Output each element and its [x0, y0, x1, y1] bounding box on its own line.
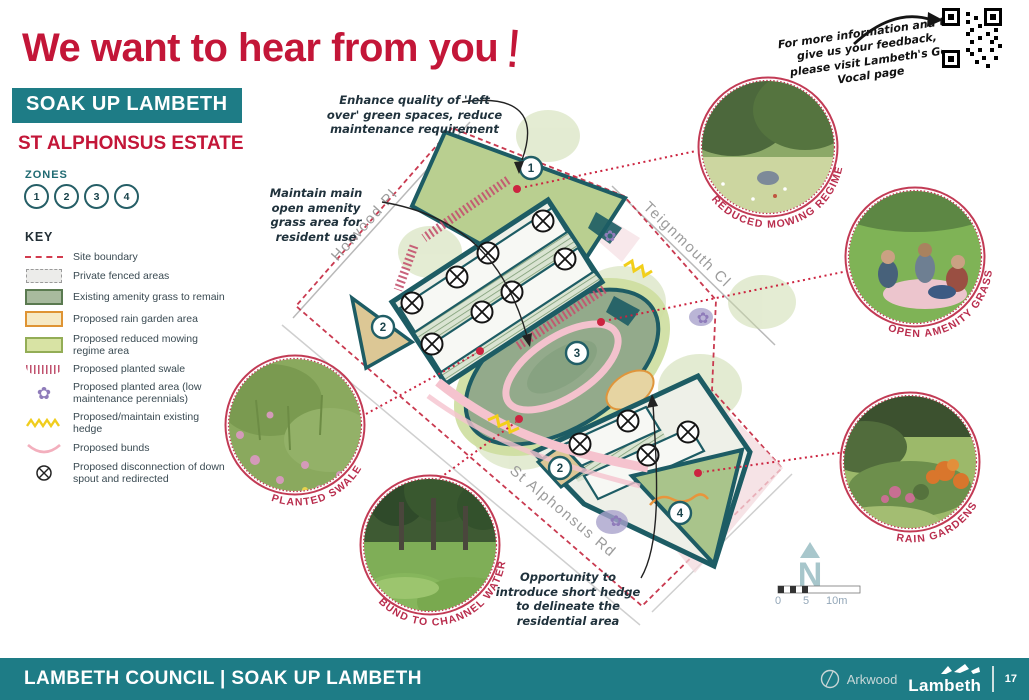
key-row: Existing amenity grass to remain [24, 289, 226, 305]
arkwood-logo: Arkwood [819, 668, 898, 690]
zone-marker: 2 [549, 457, 571, 479]
zone-chip: 2 [54, 184, 79, 209]
flower-icon: ✿ [610, 513, 623, 530]
scale-bar: 0 5 10m [775, 586, 860, 607]
zones-legend: 1 2 3 4 [24, 184, 139, 209]
rain-garden-swatch [25, 311, 63, 327]
lambeth-bird-icon [939, 663, 981, 676]
svg-text:10m: 10m [826, 595, 847, 607]
key-row: Proposed bunds [24, 442, 226, 455]
planted-area-flower-icon: ✿ [37, 385, 51, 402]
key-item-label: Proposed reduced mowing regime area [73, 333, 226, 357]
zone-chip: 4 [114, 184, 139, 209]
footer-logos: Arkwood Lambeth 17 [819, 663, 1017, 696]
key-item-label: Site boundary [73, 251, 138, 263]
downspout-icon [35, 464, 53, 482]
page-title: We want to hear from you! [22, 12, 521, 74]
svg-text:0: 0 [775, 595, 781, 607]
key-row: Proposed reduced mowing regime area [24, 333, 226, 357]
svg-text:3: 3 [574, 348, 580, 360]
key-row: Proposed rain garden area [24, 311, 226, 327]
key-item-label: Proposed planted area (low maintenance p… [73, 381, 226, 405]
zone-chip: 3 [84, 184, 109, 209]
svg-text:5: 5 [803, 595, 809, 607]
page-number: 17 [1005, 673, 1017, 685]
key-item-label: Proposed bunds [73, 442, 149, 454]
photo-rain-gardens: RAIN GARDENS [825, 377, 995, 547]
svg-text:2: 2 [557, 463, 563, 475]
key-item-label: Proposed/maintain existing hedge [73, 411, 226, 435]
estate-title: ST ALPHONSUS ESTATE [18, 133, 244, 155]
bund-arc-icon [26, 442, 62, 455]
reduced-mowing-swatch [25, 337, 63, 353]
soak-up-lambeth-badge: SOAK UP LAMBETH [12, 88, 242, 123]
zone-marker: 3 [566, 342, 588, 364]
footer-title: LAMBETH COUNCIL | SOAK UP LAMBETH [24, 668, 422, 690]
photo-open-amenity-grass: OPEN AMENITY GRASS [830, 172, 1000, 342]
site-boundary-swatch [25, 256, 63, 258]
svg-text:1: 1 [528, 163, 535, 175]
arkwood-label: Arkwood [847, 672, 898, 687]
zone-chip: 1 [24, 184, 49, 209]
key-row: Private fenced areas [24, 269, 226, 283]
annotation-enhance-quality: Enhance quality of 'left over' green spa… [322, 93, 507, 137]
lambeth-label: Lambeth [908, 676, 981, 696]
flower-icon: ✿ [697, 310, 710, 327]
annotation-maintain-grass: Maintain main open amenity grass area fo… [252, 186, 380, 245]
map-key: Site boundary Private fenced areas Exist… [24, 251, 226, 485]
lambeth-logo: Lambeth [908, 663, 981, 696]
key-row: ✿ Proposed planted area (low maintenance… [24, 381, 226, 405]
footer-bar: LAMBETH COUNCIL | SOAK UP LAMBETH Arkwoo… [0, 658, 1029, 700]
key-item-label: Proposed planted swale [73, 363, 185, 375]
key-item-label: Proposed disconnection of down spout and… [73, 461, 226, 485]
key-row: Site boundary [24, 251, 226, 263]
photo-image [830, 172, 1000, 342]
key-item-label: Proposed rain garden area [73, 313, 198, 325]
key-item-label: Existing amenity grass to remain [73, 291, 225, 303]
zone-marker: 2 [372, 316, 394, 338]
footer-divider [992, 666, 994, 692]
planted-swale-swatch [26, 365, 62, 374]
svg-text:4: 4 [677, 508, 684, 520]
qr-code [942, 8, 1002, 68]
zone-marker: 4 [669, 502, 691, 524]
svg-text:2: 2 [380, 322, 386, 334]
photo-image [825, 377, 995, 547]
zones-label: ZONES [25, 169, 68, 181]
key-row: Proposed/maintain existing hedge [24, 411, 226, 435]
exclamation-mark: ! [504, 17, 524, 80]
annotation-short-hedge: Opportunity to introduce short hedge to … [488, 570, 648, 629]
private-fenced-swatch [26, 269, 62, 283]
flower-icon: ✿ [604, 228, 617, 245]
key-item-label: Private fenced areas [73, 270, 169, 282]
key-row: Proposed planted swale [24, 363, 226, 375]
hedge-zigzag-icon [26, 418, 62, 429]
arrow-to-qr-icon [850, 4, 945, 49]
arkwood-circle-icon [819, 668, 841, 690]
key-label: KEY [25, 230, 53, 244]
amenity-grass-swatch [25, 289, 63, 305]
zone-marker: 1 [520, 157, 542, 179]
key-row: Proposed disconnection of down spout and… [24, 461, 226, 485]
